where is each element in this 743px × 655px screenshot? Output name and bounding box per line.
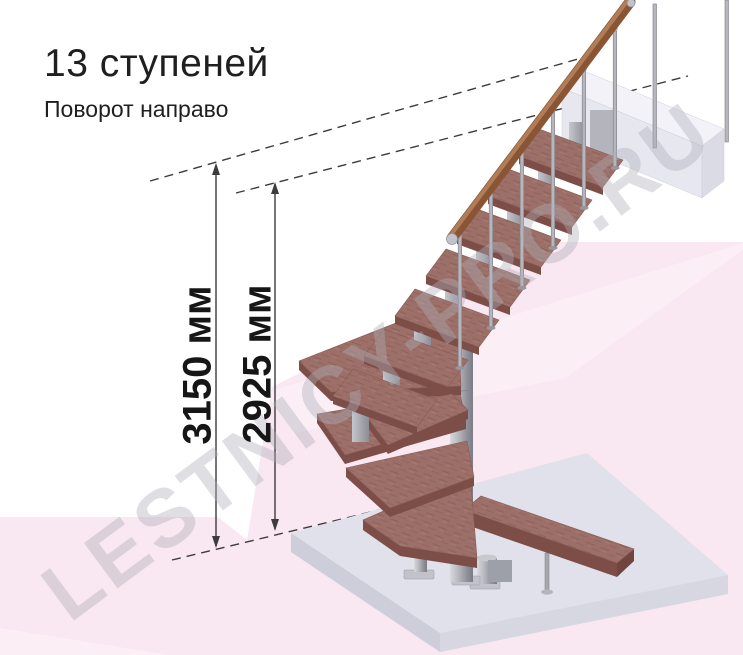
header-block: 13 ступеней Поворот направо	[44, 42, 269, 123]
page-subtitle: Поворот направо	[44, 96, 269, 124]
dimension-label-3150: 3150 мм	[176, 285, 221, 444]
page-title: 13 ступеней	[44, 42, 269, 87]
handrail-end-cap	[447, 234, 458, 245]
bottom-step-bracket	[488, 560, 512, 582]
staircase-diagram: LESTNICY-PRO.RU 13 ступеней Поворот напр…	[0, 0, 743, 655]
handrail-top-cap	[627, 0, 635, 7]
dimension-label-2925: 2925 мм	[236, 284, 281, 443]
